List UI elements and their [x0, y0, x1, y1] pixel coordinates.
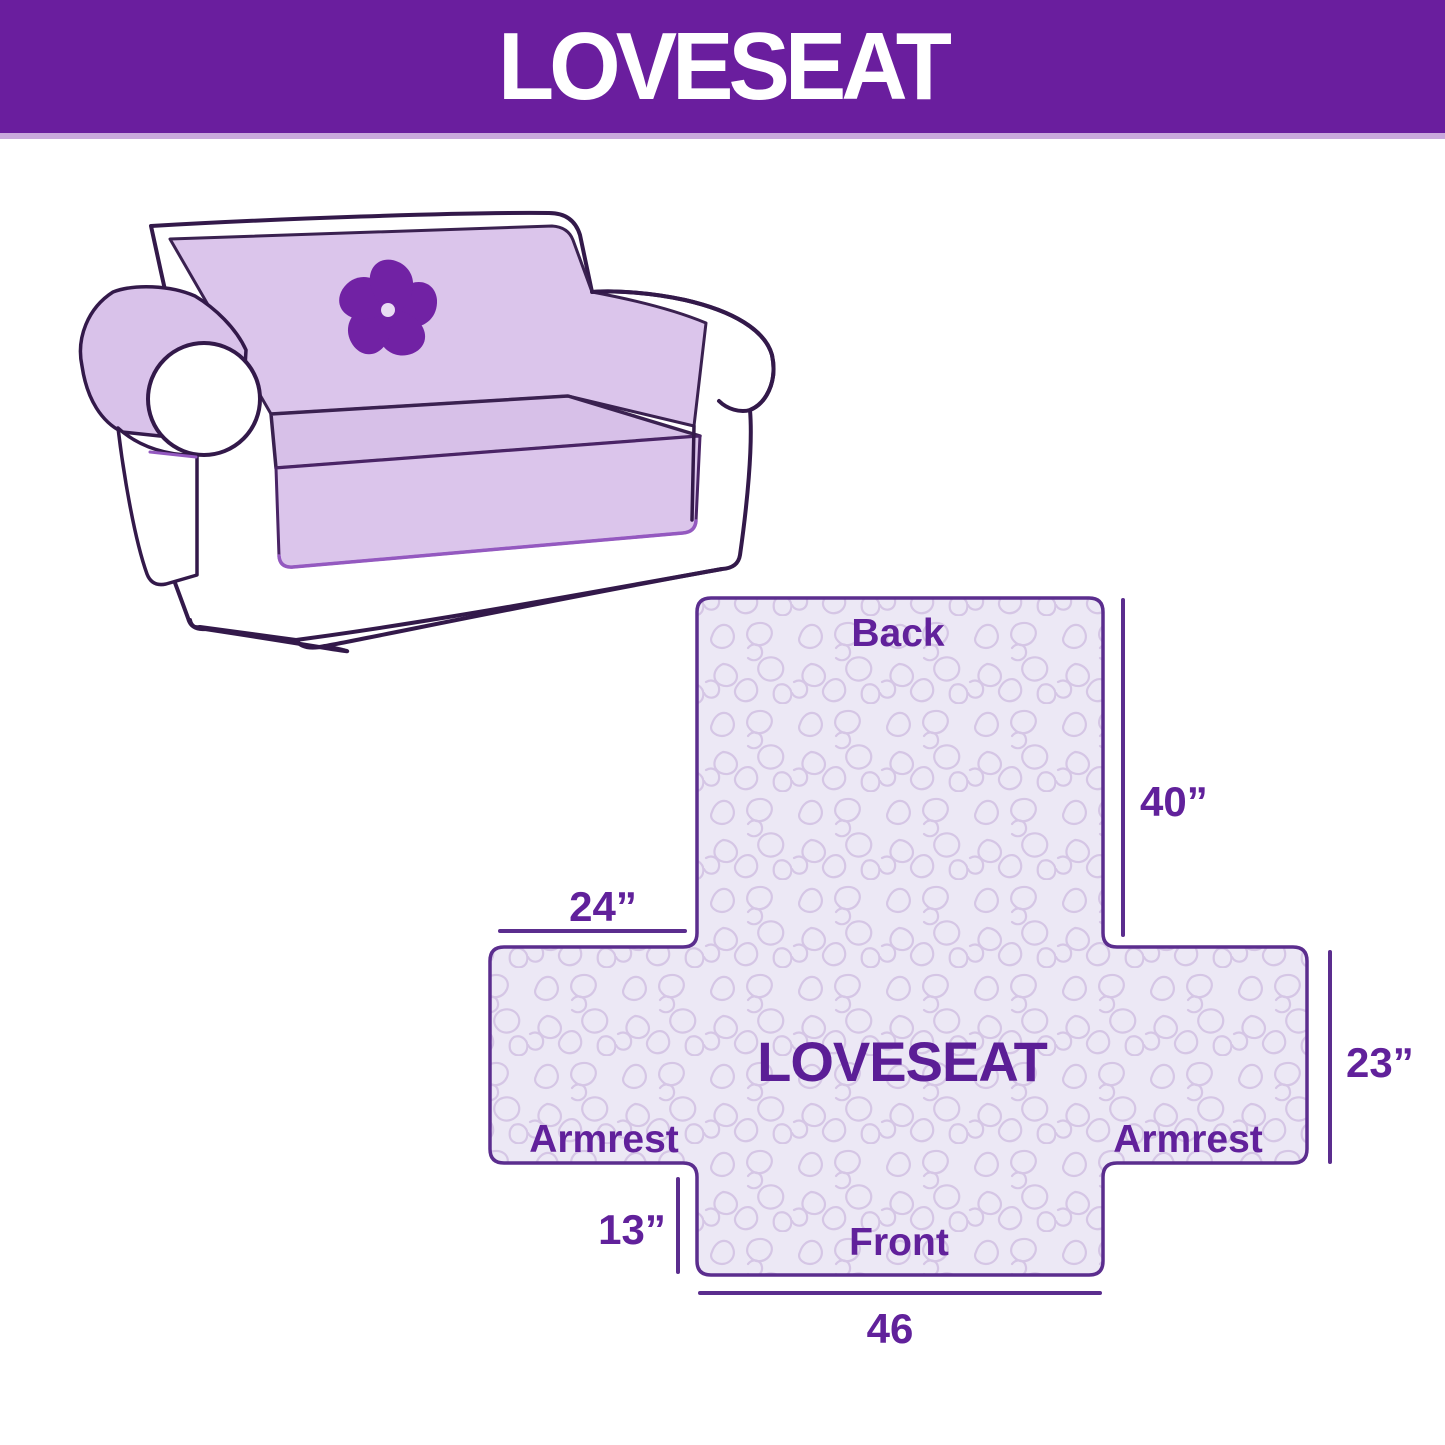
armrest-side-height-value: 23”: [1346, 1039, 1414, 1086]
armrest-top-width-value: 24”: [569, 883, 637, 930]
back-label: Back: [851, 612, 945, 655]
back-height-value: 40”: [1140, 778, 1208, 825]
loveseat-illustration: [80, 213, 773, 651]
illustration-and-diagram: Back LOVESEAT Armrest Armrest Front 40” …: [0, 0, 1445, 1445]
armrest-right-label: Armrest: [1113, 1118, 1263, 1161]
right-arm-inner-edge: [692, 426, 694, 520]
front-bottom-width-value: 46: [867, 1305, 914, 1352]
cover-cross-shape: [490, 598, 1307, 1275]
front-label: Front: [849, 1221, 949, 1264]
left-arm-roll: [148, 343, 260, 455]
cover-diagram: Back LOVESEAT Armrest Armrest Front 40” …: [490, 598, 1414, 1352]
front-flap-height-value: 13”: [598, 1206, 666, 1253]
armrest-left-label: Armrest: [529, 1118, 679, 1161]
diagram-product-label: LOVESEAT: [757, 1030, 1047, 1093]
infographic-page: LOVESEAT: [0, 0, 1445, 1445]
